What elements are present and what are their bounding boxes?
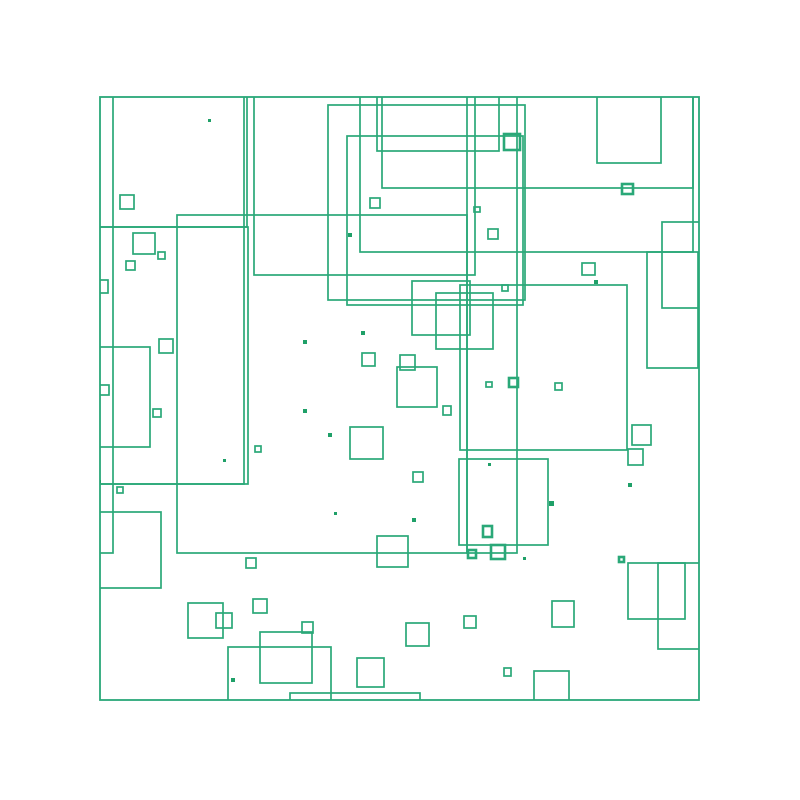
rect-outline bbox=[582, 263, 595, 275]
generative-artwork-page bbox=[0, 0, 800, 800]
rect-outline bbox=[360, 93, 693, 252]
filled-dot bbox=[594, 280, 598, 284]
filled-dot bbox=[334, 512, 337, 515]
rect-outline bbox=[597, 93, 661, 163]
rect-outline bbox=[120, 195, 134, 209]
rect-outline bbox=[397, 367, 437, 407]
rect-outline bbox=[95, 347, 150, 447]
filled-dot bbox=[303, 340, 307, 344]
rect-outline bbox=[662, 222, 702, 308]
rect-outline bbox=[328, 105, 525, 300]
rect-outline bbox=[357, 658, 384, 687]
rect-outline bbox=[486, 382, 492, 387]
rect-outline bbox=[255, 446, 261, 452]
rect-outline bbox=[95, 385, 109, 395]
rect-outline bbox=[413, 472, 423, 482]
rect-outline bbox=[253, 599, 267, 613]
filled-dot bbox=[488, 463, 491, 466]
generative-artwork-canvas bbox=[0, 0, 800, 800]
rect-outline bbox=[96, 280, 108, 293]
filled-dot bbox=[208, 119, 211, 122]
rect-outline bbox=[382, 93, 693, 188]
rect-outline bbox=[504, 668, 511, 676]
thick-square-outline bbox=[491, 545, 505, 559]
rect-outline bbox=[159, 339, 173, 353]
rect-outline bbox=[628, 563, 685, 619]
filled-dot bbox=[412, 518, 416, 522]
filled-dot bbox=[303, 409, 307, 413]
filled-dot bbox=[223, 459, 226, 462]
rect-outline bbox=[502, 285, 508, 291]
rect-outline bbox=[443, 406, 451, 415]
rect-outline bbox=[347, 136, 523, 305]
rect-outline bbox=[436, 293, 493, 349]
thick-square-outline bbox=[622, 184, 633, 194]
rect-outline bbox=[158, 252, 165, 259]
rect-outline bbox=[412, 281, 470, 335]
rect-outline bbox=[177, 215, 467, 553]
rect-outline bbox=[362, 353, 375, 366]
thick-square-outline bbox=[468, 550, 476, 558]
rect-outline bbox=[188, 603, 223, 638]
rect-outline bbox=[459, 459, 548, 545]
rect-outline bbox=[632, 425, 651, 445]
rect-outline bbox=[94, 512, 161, 588]
filled-dot bbox=[361, 331, 365, 335]
rect-outline bbox=[254, 93, 475, 275]
thick-square-outline bbox=[483, 526, 492, 537]
filled-dot bbox=[231, 678, 235, 682]
rect-outline bbox=[377, 93, 499, 151]
filled-dot bbox=[328, 433, 332, 437]
rect-outline bbox=[658, 563, 702, 649]
rect-outline bbox=[377, 536, 408, 567]
rect-outline bbox=[552, 601, 574, 627]
rect-outline bbox=[216, 613, 232, 628]
rect-outline bbox=[92, 227, 248, 484]
rect-outline bbox=[350, 427, 383, 459]
rect-outline bbox=[406, 623, 429, 646]
filled-dot bbox=[628, 483, 632, 487]
rect-outline bbox=[647, 252, 698, 368]
rect-outline bbox=[260, 632, 312, 683]
rect-outline bbox=[126, 261, 135, 270]
thick-square-outline bbox=[619, 557, 624, 562]
rect-outline bbox=[464, 616, 476, 628]
rect-outline bbox=[88, 92, 247, 227]
filled-dot bbox=[549, 501, 554, 506]
rect-outline bbox=[153, 409, 161, 417]
filled-dot bbox=[523, 557, 526, 560]
rect-outline bbox=[133, 233, 155, 254]
rect-outline bbox=[628, 449, 643, 465]
artwork-shapes-group bbox=[80, 84, 702, 702]
rect-outline bbox=[370, 198, 380, 208]
rect-outline bbox=[117, 487, 123, 493]
rect-outline bbox=[534, 671, 569, 702]
rect-outline bbox=[460, 285, 627, 450]
rect-outline bbox=[246, 558, 256, 568]
rect-outline bbox=[80, 84, 113, 553]
rect-outline bbox=[555, 383, 562, 390]
rect-outline bbox=[488, 229, 498, 239]
filled-dot bbox=[348, 233, 352, 237]
